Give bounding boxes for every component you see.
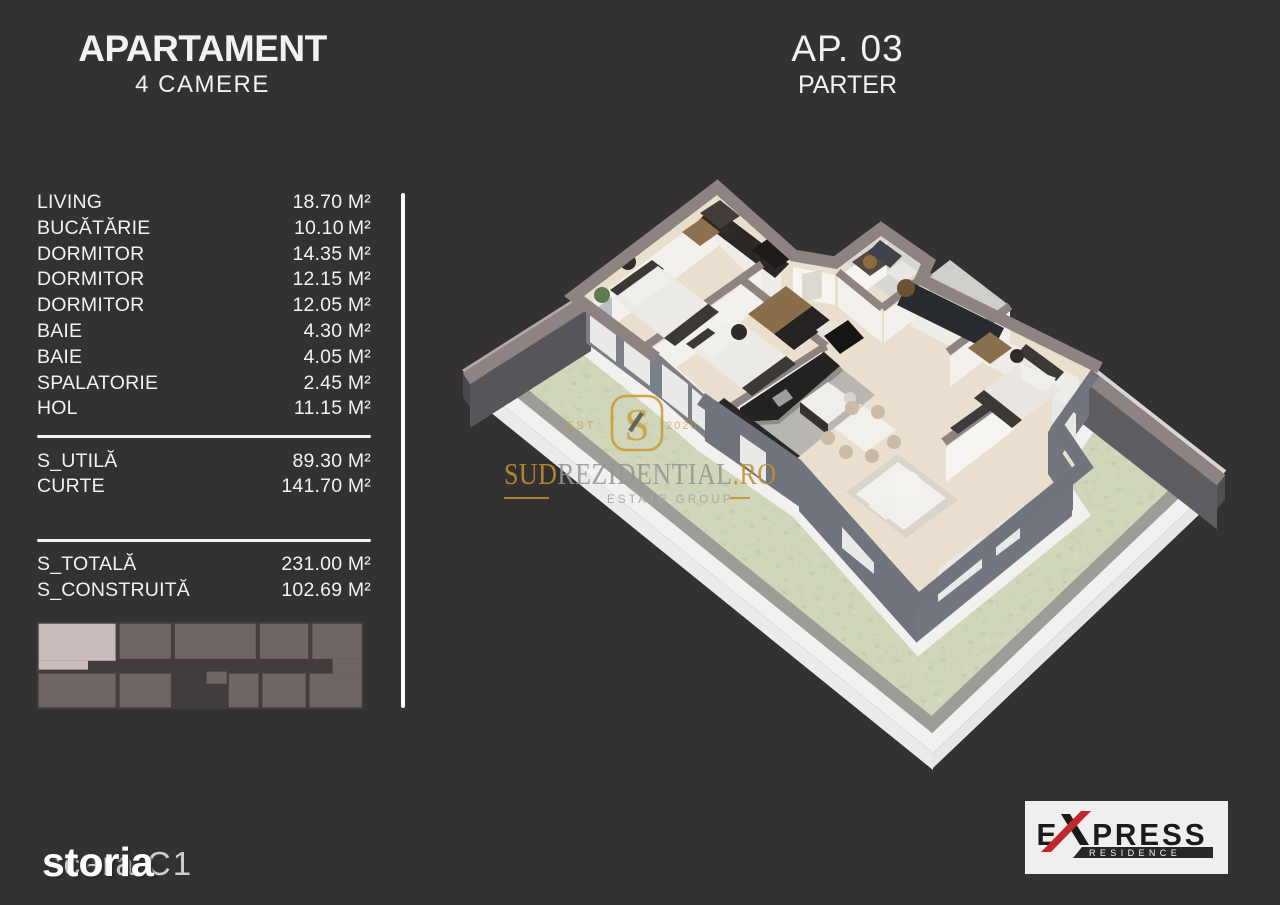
- svg-text:ESTATE GROUP: ESTATE GROUP: [607, 494, 734, 506]
- svg-text:2020: 2020: [666, 420, 698, 432]
- svg-text:EST: EST: [566, 420, 596, 432]
- svg-text:PRESS: PRESS: [1092, 817, 1207, 852]
- svg-text:RESIDENCE: RESIDENCE: [1089, 848, 1181, 858]
- svg-text:SUDREZIDENTIAL.RO: SUDREZIDENTIAL.RO: [504, 457, 776, 492]
